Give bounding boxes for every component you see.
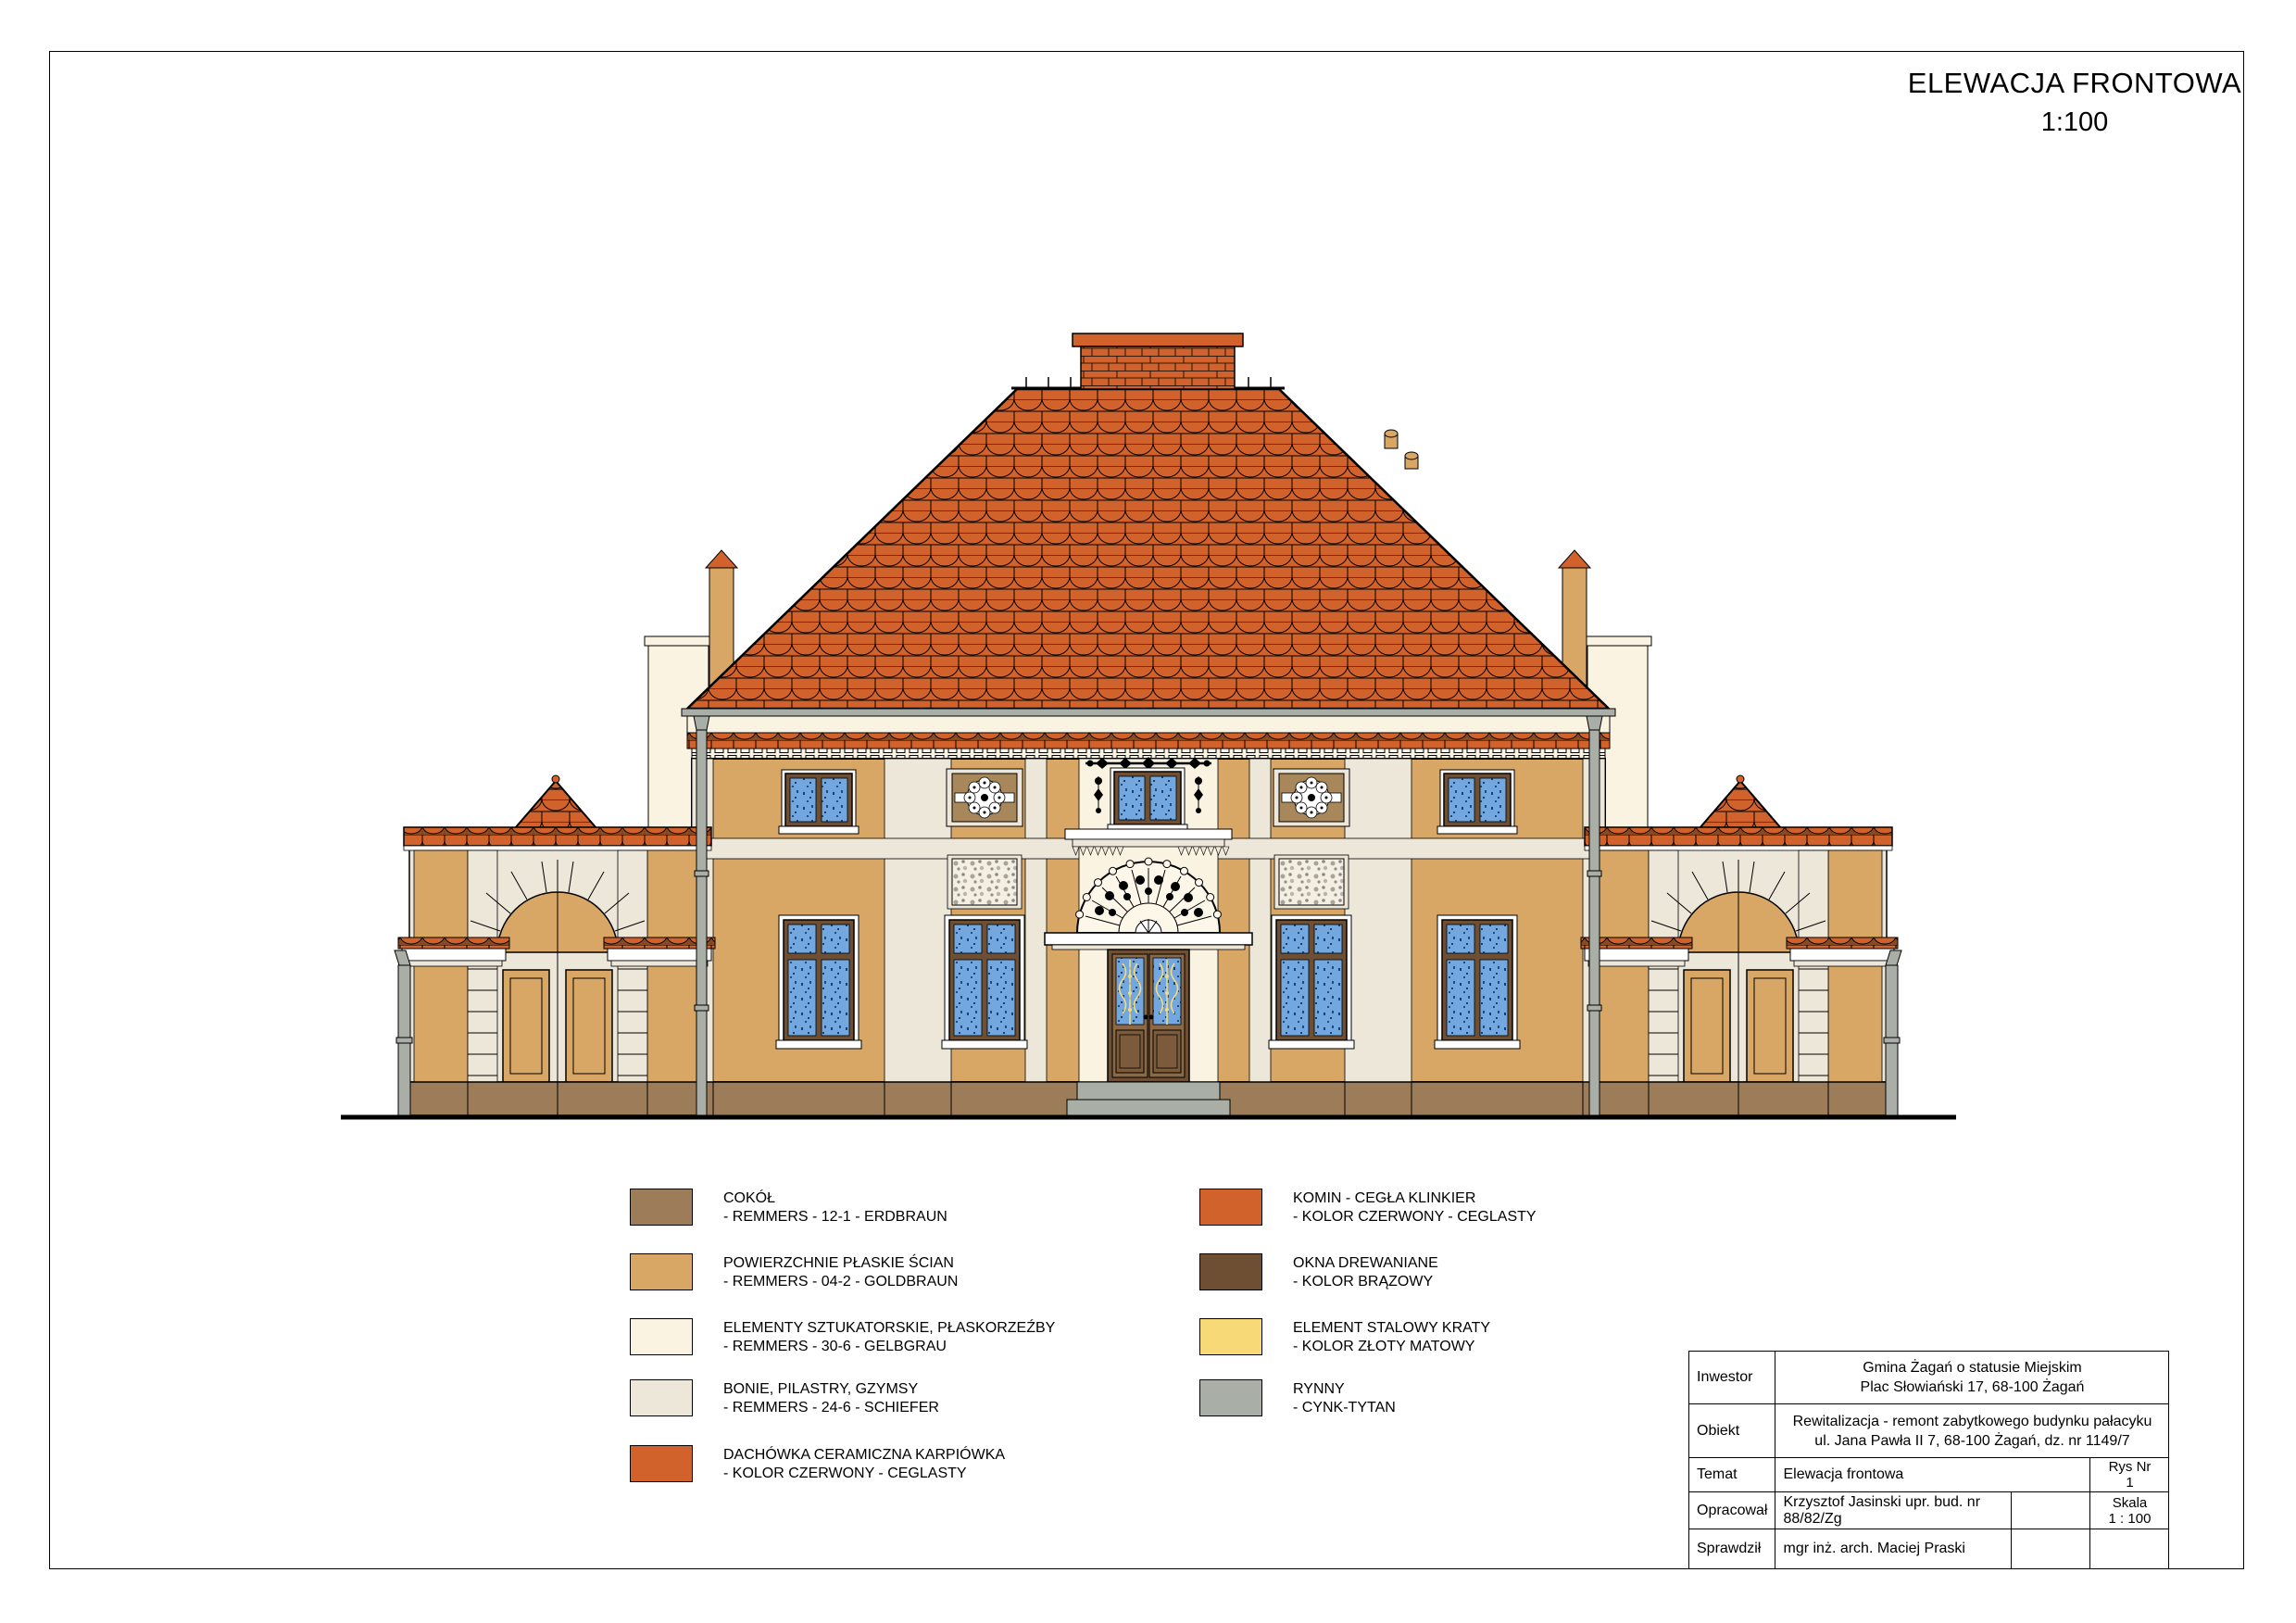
legend-item-cokol: COKÓŁ- REMMERS - 12-1 - ERDBRAUN bbox=[630, 1189, 947, 1227]
legend-label: ELEMENTY SZTUKATORSKIE, PŁASKORZEŹBY bbox=[723, 1319, 1055, 1338]
legend-label: BONIE, PILASTRY, GZYMSY bbox=[723, 1380, 939, 1399]
titleblock-empty-cell bbox=[2090, 1529, 2169, 1569]
window bbox=[776, 915, 861, 1049]
obiekt-line1: Rewitalizacja - remont zabytkowego budyn… bbox=[1783, 1412, 2161, 1431]
legend-item-bonie: BONIE, PILASTRY, GZYMSY- REMMERS - 24-6 … bbox=[630, 1379, 939, 1417]
titleblock-sprawdzil-value: mgr inż. arch. Maciej Praski bbox=[1775, 1529, 2012, 1569]
titleblock-skala: Skala 1 : 100 bbox=[2090, 1492, 2169, 1529]
titleblock-empty-cell bbox=[2012, 1492, 2090, 1529]
rysnr-value: 1 bbox=[2098, 1475, 2161, 1491]
titleblock-inwestor-label: Inwestor bbox=[1689, 1352, 1775, 1404]
obiekt-line2: ul. Jana Pawła II 7, 68-100 Żagań, dz. n… bbox=[1783, 1431, 2161, 1451]
legend-item-rynny: RYNNY- CYNK-TYTAN bbox=[1199, 1379, 1396, 1417]
window bbox=[1108, 768, 1187, 832]
skala-value: 1 : 100 bbox=[2098, 1511, 2161, 1527]
inwestor-line2: Plac Słowiański 17, 68-100 Żagań bbox=[1783, 1378, 2161, 1397]
titleblock-opracowal-value: Krzysztof Jasinski upr. bud. nr 88/82/Zg bbox=[1775, 1492, 2012, 1529]
legend-item-sciany: POWIERZCHNIE PŁASKIE ŚCIAN- REMMERS - 04… bbox=[630, 1253, 958, 1291]
legend-label: DACHÓWKA CERAMICZNA KARPIÓWKA bbox=[723, 1446, 1005, 1465]
legend-label: KOMIN - CEGŁA KLINKIER bbox=[1293, 1189, 1537, 1208]
legend-spec: - KOLOR BRĄZOWY bbox=[1293, 1273, 1438, 1291]
entrance-door bbox=[1108, 950, 1189, 1082]
legend-swatch-goldbraun bbox=[630, 1253, 693, 1290]
titleblock-obiekt-label: Obiekt bbox=[1689, 1404, 1775, 1458]
legend-swatch-gelbgrau bbox=[630, 1318, 693, 1355]
legend-spec: - KOLOR ZŁOTY MATOWY bbox=[1293, 1338, 1490, 1356]
legend-item-okna: OKNA DREWANIANE- KOLOR BRĄZOWY bbox=[1199, 1253, 1438, 1291]
titleblock-inwestor-value: Gmina Żagań o statusie Miejskim Plac Sło… bbox=[1775, 1352, 2169, 1404]
titleblock-empty-cell bbox=[2012, 1529, 2090, 1569]
titleblock-obiekt-value: Rewitalizacja - remont zabytkowego budyn… bbox=[1775, 1404, 2169, 1458]
legend-swatch-cokol bbox=[630, 1189, 693, 1226]
downpipe-right bbox=[1587, 716, 1602, 1116]
legend-swatch-dachowka bbox=[630, 1445, 693, 1482]
legend-label: OKNA DREWANIANE bbox=[1293, 1254, 1438, 1273]
legend-label: ELEMENT STALOWY KRATY bbox=[1293, 1319, 1490, 1338]
legend-spec: - KOLOR CZERWONY - CEGLASTY bbox=[723, 1465, 1005, 1483]
legend-spec: - CYNK-TYTAN bbox=[1293, 1399, 1396, 1417]
legend-spec: - REMMERS - 24-6 - SCHIEFER bbox=[723, 1399, 939, 1417]
legend-label: RYNNY bbox=[1293, 1380, 1396, 1399]
eaves-cornice bbox=[682, 709, 1615, 759]
title-block: Inwestor Gmina Żagań o statusie Miejskim… bbox=[1688, 1351, 2169, 1569]
legend-spec: - KOLOR CZERWONY - CEGLASTY bbox=[1293, 1208, 1537, 1227]
legend-label: POWIERZCHNIE PŁASKIE ŚCIAN bbox=[723, 1254, 958, 1273]
inwestor-line1: Gmina Żagań o statusie Miejskim bbox=[1783, 1358, 2161, 1378]
legend-swatch-krata bbox=[1199, 1318, 1262, 1355]
rosette-relief bbox=[1273, 769, 1349, 826]
legend-item-krata: ELEMENT STALOWY KRATY- KOLOR ZŁOTY MATOW… bbox=[1199, 1318, 1490, 1356]
titleblock-rysnr: Rys Nr 1 bbox=[2090, 1458, 2169, 1492]
legend-swatch-komin bbox=[1199, 1189, 1262, 1226]
rosette-relief bbox=[947, 769, 1023, 826]
legend-swatch-schiefer bbox=[630, 1379, 693, 1416]
legend-item-sztukatorskie: ELEMENTY SZTUKATORSKIE, PŁASKORZEŹBY- RE… bbox=[630, 1318, 1055, 1356]
rysnr-label: Rys Nr bbox=[2098, 1459, 2161, 1475]
sgraffito-panel bbox=[1274, 855, 1349, 909]
window bbox=[779, 770, 859, 834]
legend-label: COKÓŁ bbox=[723, 1189, 947, 1208]
titleblock-opracowal-label: Opracował bbox=[1689, 1492, 1775, 1529]
window bbox=[1269, 915, 1354, 1049]
titleblock-temat-label: Temat bbox=[1689, 1458, 1775, 1492]
chimney bbox=[1073, 333, 1243, 389]
titleblock-sprawdzil-label: Sprawdził bbox=[1689, 1529, 1775, 1569]
window bbox=[942, 915, 1027, 1049]
skala-label: Skala bbox=[2098, 1495, 2161, 1511]
legend-spec: - REMMERS - 12-1 - ERDBRAUN bbox=[723, 1208, 947, 1227]
legend-item-komin: KOMIN - CEGŁA KLINKIER- KOLOR CZERWONY -… bbox=[1199, 1189, 1537, 1227]
legend-swatch-okna bbox=[1199, 1253, 1262, 1290]
titleblock-temat-value: Elewacja frontowa bbox=[1775, 1458, 2090, 1492]
window bbox=[1435, 915, 1520, 1049]
legend-swatch-rynny bbox=[1199, 1379, 1262, 1416]
sgraffito-panel bbox=[947, 855, 1022, 909]
roof-vents bbox=[1385, 430, 1418, 469]
legend-spec: - REMMERS - 30-6 - GELBGRAU bbox=[723, 1338, 1055, 1356]
legend-spec: - REMMERS - 04-2 - GOLDBRAUN bbox=[723, 1273, 958, 1291]
legend-item-dachowka: DACHÓWKA CERAMICZNA KARPIÓWKA- KOLOR CZE… bbox=[630, 1445, 1005, 1483]
main-roof bbox=[687, 377, 1609, 709]
window bbox=[1437, 770, 1517, 834]
downpipe-left bbox=[694, 716, 709, 1116]
entrance-steps bbox=[1067, 1082, 1230, 1115]
